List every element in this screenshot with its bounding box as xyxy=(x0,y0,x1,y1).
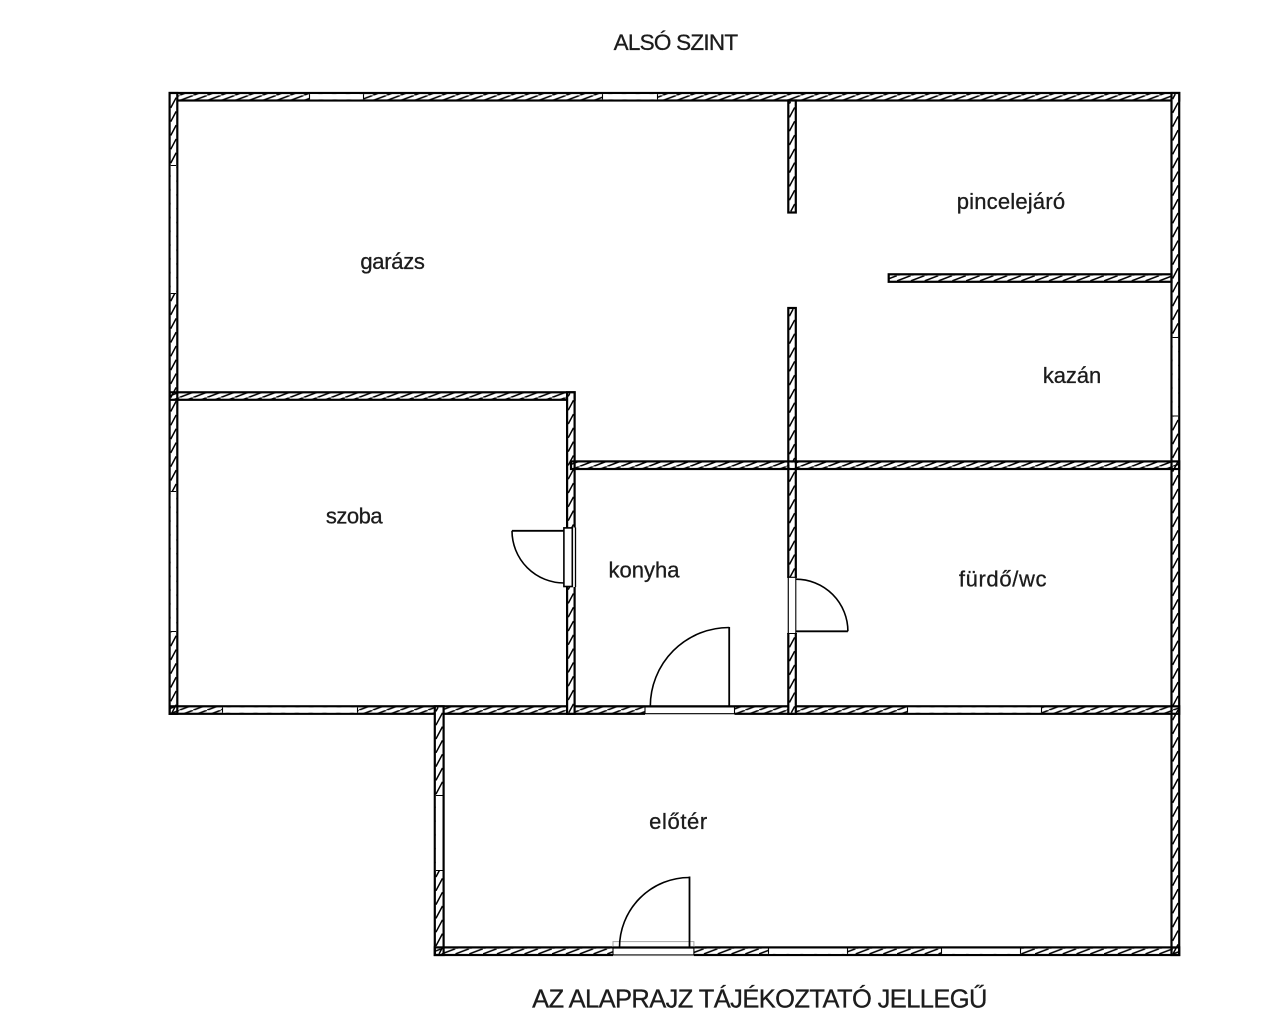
svg-text:AZ ALAPRAJZ TÁJÉKOZTATÓ JELLEG: AZ ALAPRAJZ TÁJÉKOZTATÓ JELLEGŰ xyxy=(532,985,987,1014)
svg-text:szoba: szoba xyxy=(326,504,383,529)
svg-text:pincelejáró: pincelejáró xyxy=(957,189,1066,214)
svg-text:konyha: konyha xyxy=(609,558,681,583)
svg-text:fürdő/wc: fürdő/wc xyxy=(959,567,1047,592)
svg-text:kazán: kazán xyxy=(1043,363,1101,388)
svg-text:ALSÓ SZINT: ALSÓ SZINT xyxy=(614,30,739,55)
svg-text:garázs: garázs xyxy=(360,249,425,274)
svg-text:előtér: előtér xyxy=(649,809,708,834)
